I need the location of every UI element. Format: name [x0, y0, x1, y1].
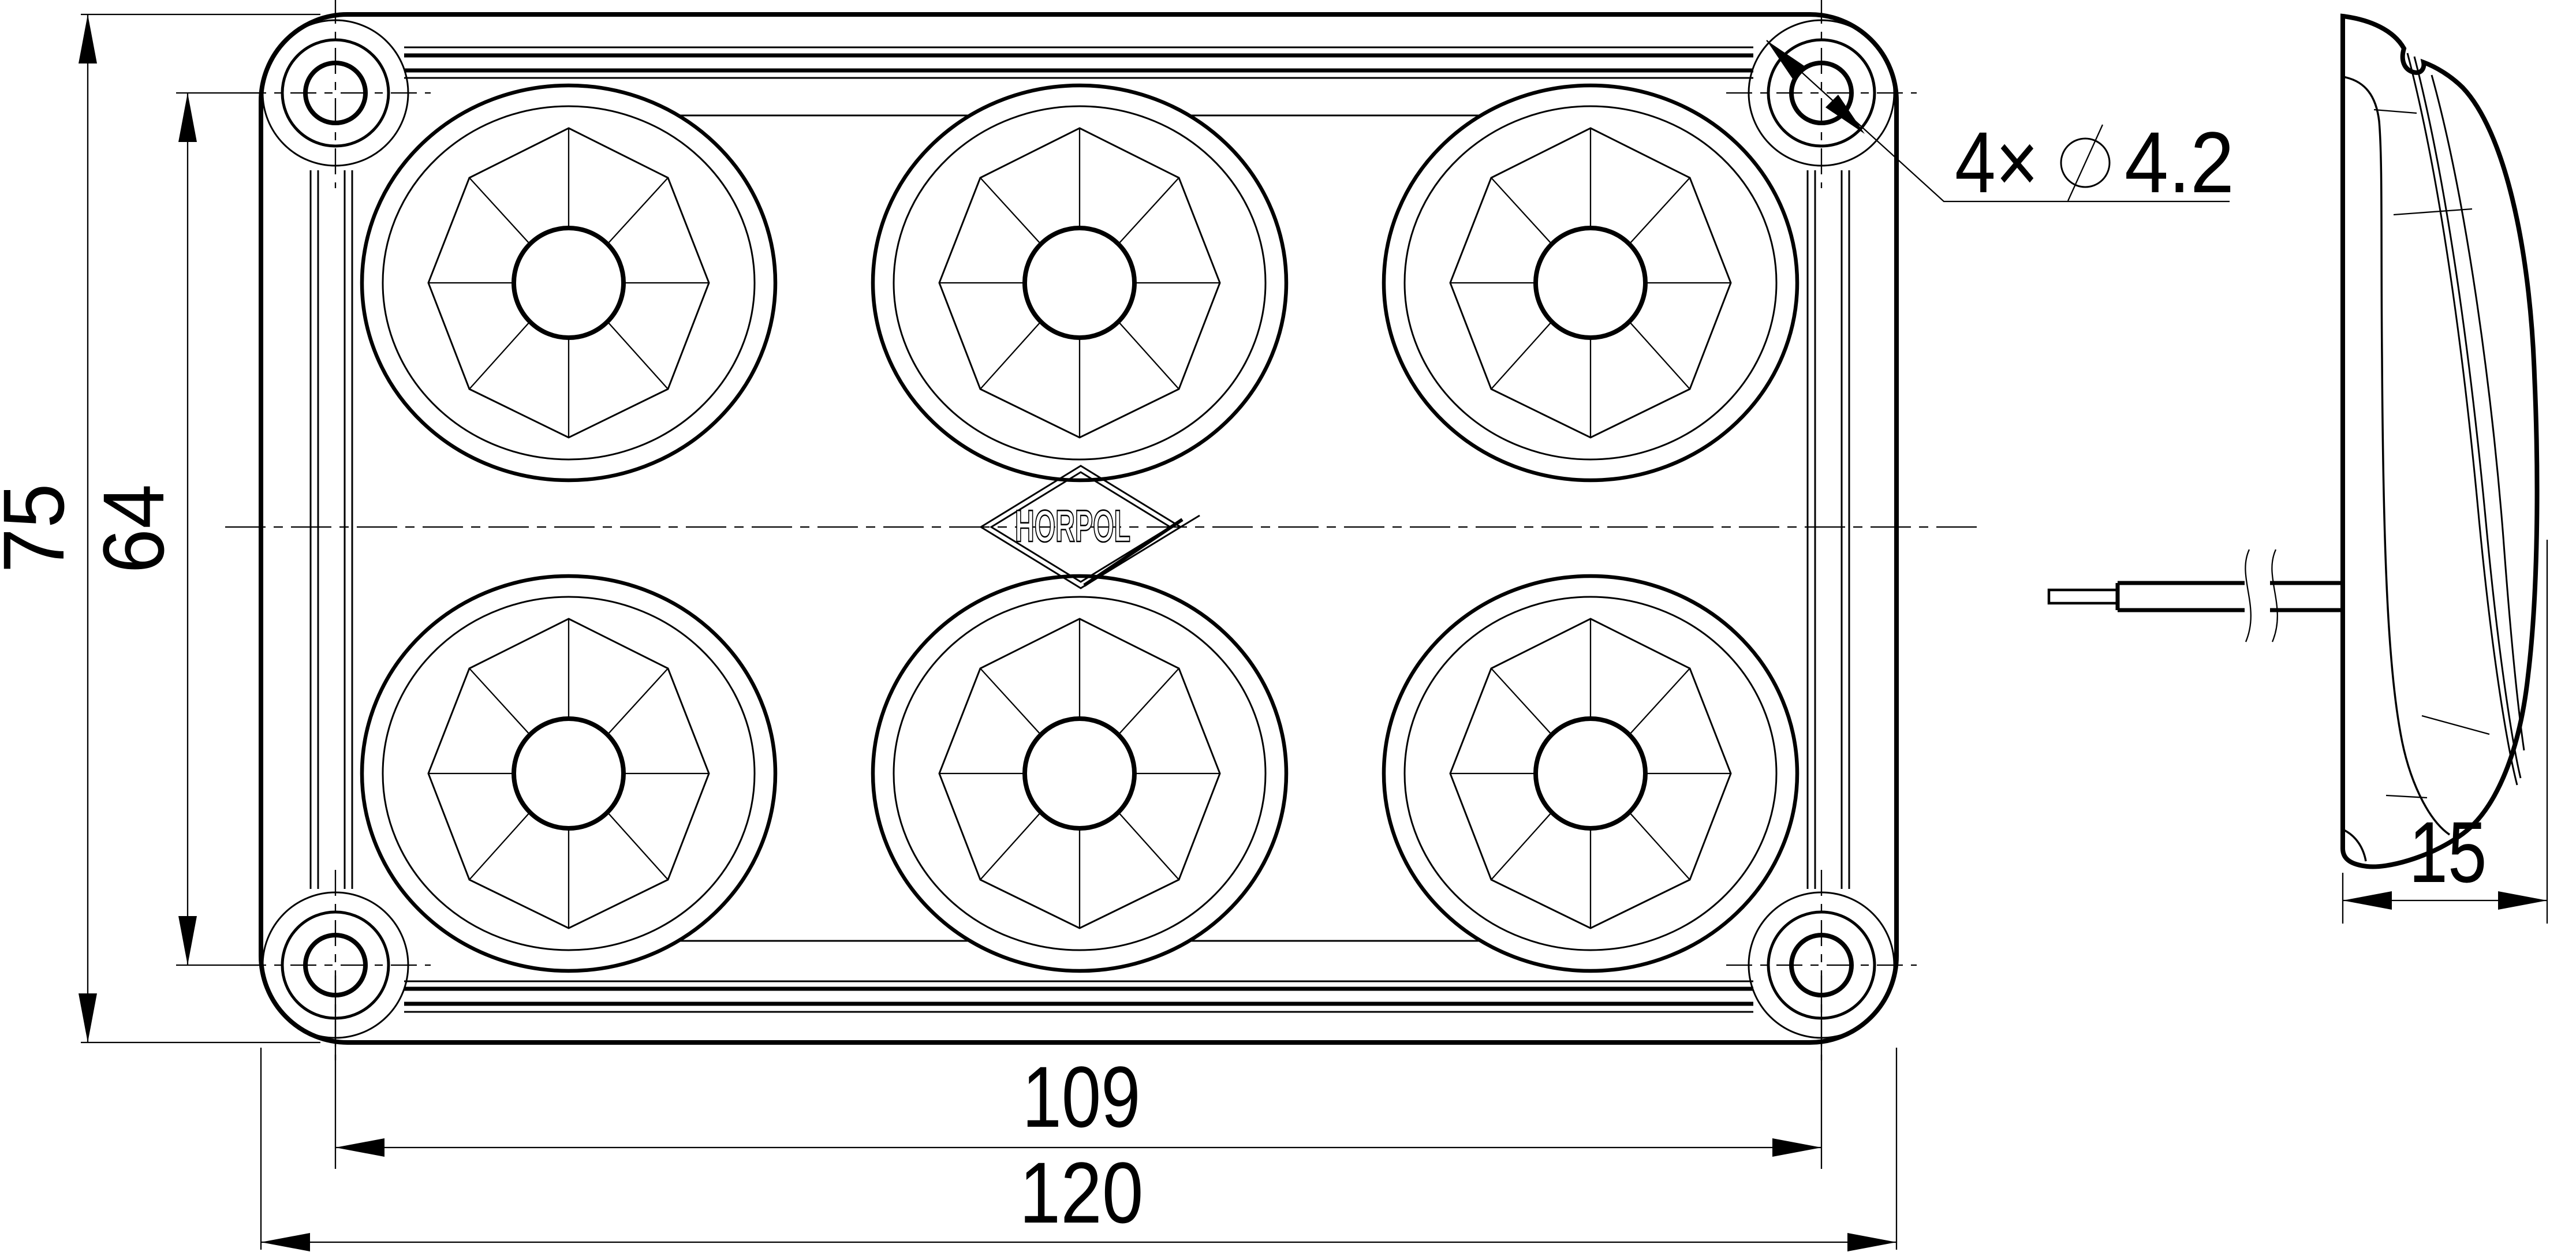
hole-note-count-label: 4×: [1955, 114, 2039, 211]
mounting-hole-top-right: [1726, 0, 1917, 188]
lens-top-center: [873, 85, 1286, 480]
wire-tip: [2049, 590, 2118, 603]
drawing-sheet: HORPOL: [0, 0, 2576, 1252]
dim-depth-label: 15: [2409, 803, 2487, 900]
hole-note-value-label: 4.2: [2125, 114, 2234, 211]
lens-contour: [2432, 75, 2524, 750]
bottom-bezel-rails: [404, 981, 1753, 1012]
dim-width-overall-label: 120: [1020, 1144, 1144, 1241]
front-view: HORPOL: [225, 0, 1981, 1060]
lens-bottom-left: [362, 576, 775, 971]
diameter-symbol-icon: [2061, 125, 2110, 201]
dim-holes-vertical-label: 64: [85, 484, 182, 574]
dimension-hole-spacing-vertical: 64: [85, 93, 263, 965]
side-view: [2049, 16, 2537, 867]
cable: [2049, 550, 2343, 642]
right-bezel-rails: [1808, 170, 1849, 889]
technical-drawing: HORPOL: [0, 0, 2576, 1252]
left-bezel-rails: [311, 170, 352, 889]
horpol-logo-text: HORPOL: [1015, 500, 1130, 551]
top-bezel-rails: [404, 47, 1753, 78]
break-mark: [2245, 550, 2250, 642]
mounting-hole-top-left: [240, 0, 431, 188]
lens-top-left: [362, 85, 775, 480]
lens-bottom-right: [1384, 576, 1797, 971]
lens-top-right: [1384, 85, 1797, 480]
lens-bottom-center: [873, 576, 1286, 971]
break-mark: [2272, 550, 2277, 642]
dim-holes-horizontal-label: 109: [1022, 1048, 1141, 1145]
inner-housing-contour: [2343, 77, 2450, 835]
dim-height-overall-label: 75: [0, 484, 82, 573]
